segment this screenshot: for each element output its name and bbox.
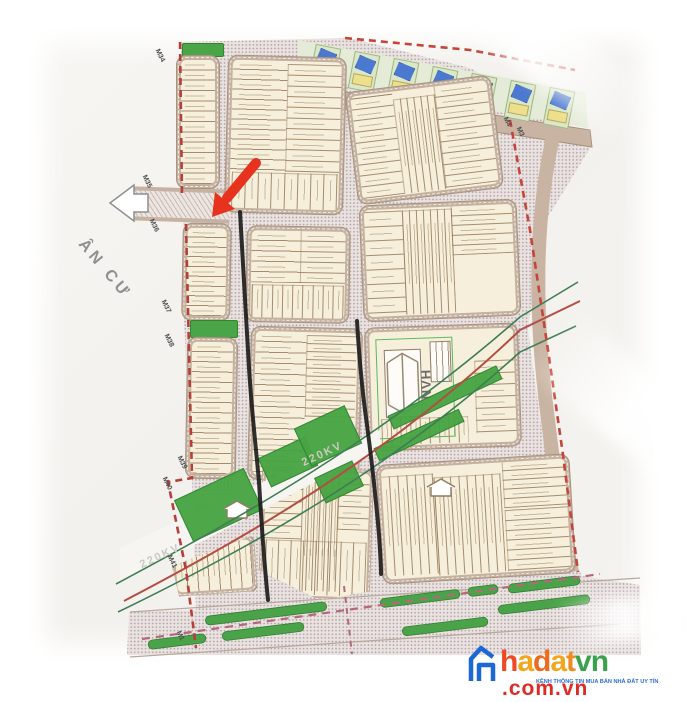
watermark-letter: t	[566, 647, 575, 677]
watermark-letter: n	[591, 647, 608, 677]
boundary-marker-m35: M35	[141, 174, 153, 189]
watermark-letter: v	[575, 647, 591, 677]
screenshot-root: { "map": { "region_label": "ÂN CƯ", "cor…	[0, 0, 700, 700]
boundary-marker-m40: M40	[161, 476, 173, 491]
watermark-letter: h	[500, 647, 517, 677]
boundary-marker-m3: M3	[515, 126, 526, 138]
boundary-marker-m1: M1	[175, 630, 186, 642]
boundary-marker-m41: M41	[166, 554, 178, 569]
boundary-marker-m37: M37	[160, 299, 172, 314]
watermark-letter: a	[517, 647, 533, 677]
boundary-marker-m38: M38	[163, 333, 175, 348]
boundary-marker-m36: M36	[148, 218, 160, 233]
watermark-letter: a	[550, 647, 566, 677]
watermark-tagline: KÊNH THÔNG TIN MUA BÁN NHÀ ĐẤT UY TÍN	[536, 679, 658, 685]
boundary-marker-m39: M39	[176, 455, 188, 470]
boundary-marker-m4: M4	[502, 116, 513, 128]
watermark-site-name: hadatvn	[500, 647, 608, 677]
watermark: hadatvn.com.vn KÊNH THÔNG TIN MUA BÁN NH…	[466, 641, 696, 699]
watermark-house-icon	[466, 641, 500, 685]
watermark-letter: d	[533, 647, 550, 677]
boundary-marker-m34: M34	[154, 48, 166, 63]
